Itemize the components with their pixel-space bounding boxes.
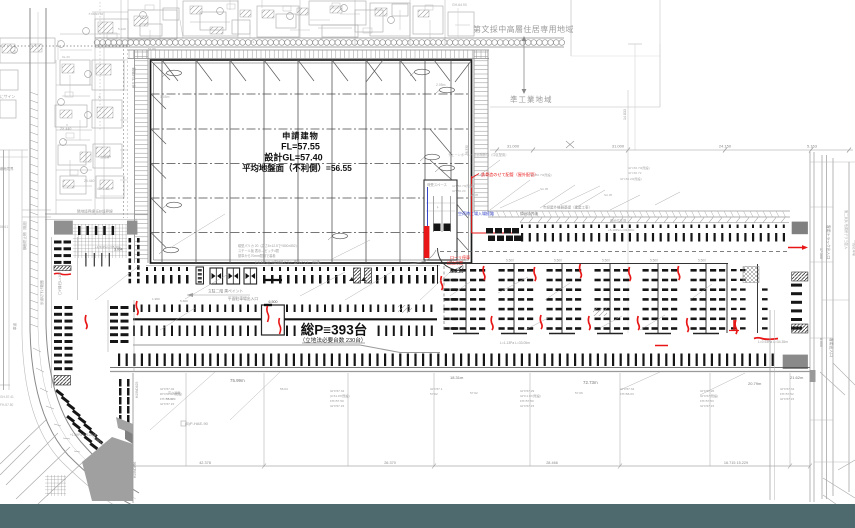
svg-text:GH-64.90: GH-64.90 [452, 3, 467, 7]
svg-text:〇Y縁石L=100: 〇Y縁石L=100 [57, 272, 62, 295]
svg-text:GH=57.15: GH=57.15 [520, 404, 534, 408]
svg-text:GH-56.72: GH-56.72 [628, 171, 642, 175]
svg-text:GH-56.70(既設): GH-56.70(既設) [628, 165, 650, 170]
svg-text:SA.05: SA.05 [540, 187, 549, 191]
svg-text:L=0.93Pa L=34.35m: L=0.93Pa L=34.35m [758, 340, 788, 344]
svg-text:較り下げ範囲: 較り下げ範囲 [131, 67, 136, 88]
svg-text:5.500: 5.500 [698, 259, 706, 263]
svg-text:当間開?: 当間開? [100, 154, 111, 159]
svg-text:31.000: 31.000 [612, 144, 625, 149]
svg-text:GH-56.70(既設): GH-56.70(既設) [530, 172, 552, 177]
svg-text:55.279: 55.279 [166, 397, 176, 401]
svg-text:18.31m: 18.31m [450, 375, 464, 380]
svg-text:17.500: 17.500 [819, 248, 823, 259]
svg-text:ト: ト [436, 205, 439, 209]
svg-text:L=1.13Pa L=33.05m: L=1.13Pa L=33.05m [500, 341, 530, 345]
svg-text:(+0.42Pa)(+0連結横ピラト 黒ペイント（共通）: (+0.42Pa)(+0連結横ピラト 黒ペイント（共通） [255, 260, 322, 265]
svg-text:+5.10Pa L=31.90m: +5.10Pa L=31.90m [608, 228, 635, 232]
svg-text:設計GL=57.40: 設計GL=57.40 [264, 152, 322, 163]
svg-text:6.500: 6.500 [269, 300, 278, 304]
svg-text:(0.51.07(既設): (0.51.07(既設) [330, 393, 350, 398]
svg-text:GH-56.70(既設): GH-56.70(既設) [452, 183, 474, 188]
svg-text:GH-56.20: GH-56.20 [452, 189, 466, 193]
svg-text:FH=57.52: FH=57.52 [780, 392, 794, 396]
svg-text:5.128: 5.128 [118, 27, 126, 31]
svg-text:(5)P-HAE-90: (5)P-HAE-90 [185, 421, 209, 426]
svg-text:FH=58.03: FH=58.03 [620, 392, 634, 396]
svg-text:磁型パリカ 20（高さ6×12.5でY800×852）: 磁型パリカ 20（高さ6×12.5でY800×852） [238, 243, 299, 248]
svg-text:FH-57.50: FH-57.50 [0, 403, 14, 407]
svg-text:1.05m: 1.05m [160, 95, 170, 99]
svg-text:5.500: 5.500 [554, 259, 562, 263]
svg-text:第文採中高層住居専用地域: 第文採中高層住居専用地域 [473, 24, 574, 34]
svg-text:H19ND825: H19ND825 [135, 382, 139, 398]
svg-text:2.05m: 2.05m [436, 83, 446, 87]
svg-text:スチール板 表示―ピッチ4間: スチール板 表示―ピッチ4間 [238, 248, 279, 253]
svg-text:基準から70mm間隔で装着: 基準から70mm間隔で装着 [238, 253, 276, 258]
svg-text:車道: 車道 [12, 323, 17, 331]
svg-text:56.61: 56.61 [0, 225, 8, 229]
svg-text:（立地法必要台数 230台）: （立地法必要台数 230台） [300, 336, 367, 344]
svg-text:横断防止柵（既設）: 横断防止柵（既設） [22, 219, 27, 251]
svg-text:26.370: 26.370 [384, 461, 396, 465]
svg-text:5.300: 5.300 [180, 299, 188, 303]
svg-text:FH=57.53: FH=57.53 [700, 399, 714, 403]
svg-text:57.06: 57.06 [575, 391, 583, 395]
svg-text:+1.09Pa L=31.90a: +1.09Pa L=31.90a [70, 433, 96, 437]
svg-text:大: 大 [98, 94, 101, 99]
svg-text:GH=57.34: GH=57.34 [330, 389, 344, 393]
svg-text:FH=57.50: FH=57.50 [330, 399, 344, 403]
svg-text:GH=57.26: GH=57.26 [700, 389, 714, 393]
svg-text:1.900: 1.900 [152, 297, 160, 301]
svg-text:市設屋外機器基礎（建屋工事）: 市設屋外機器基礎（建屋工事） [543, 205, 592, 210]
svg-text:57.02: 57.02 [430, 392, 438, 396]
svg-text:72.73m: 72.73m [583, 380, 598, 385]
svg-text:GH-57.41: GH-57.41 [0, 395, 14, 399]
svg-text:準工業地域: 準工業地域 [510, 94, 553, 104]
svg-text:2X.440: 2X.440 [60, 127, 71, 131]
svg-text:GH=57.29: GH=57.29 [520, 389, 534, 393]
svg-text:48+1.32: 48+1.32 [97, 187, 109, 191]
svg-text:客用出入口: 客用出入口 [829, 338, 834, 357]
svg-text:5.500: 5.500 [602, 259, 610, 263]
svg-text:+1.53Pa L=35.90a: +1.53Pa L=35.90a [95, 245, 121, 249]
svg-text:平均地盤面（不利側）=56.55: 平均地盤面（不利側）=56.55 [242, 163, 352, 173]
svg-text:第二京浜 柏書房デクヨ並入: 第二京浜 柏書房デクヨ並入 [844, 210, 849, 250]
svg-text:GH=57.34: GH=57.34 [780, 387, 794, 391]
svg-text:21.62m: 21.62m [790, 375, 804, 380]
svg-text:申請建物: 申請建物 [282, 131, 319, 141]
svg-text:隣地境界線 田B境界線: 隣地境界線 田B境界線 [77, 209, 113, 214]
svg-text:9L.33: 9L.33 [62, 55, 70, 59]
svg-text:敷地境界: 敷地境界 [0, 166, 14, 171]
svg-text:20.79m: 20.79m [748, 381, 762, 386]
svg-text:客用トラック出入口: 客用トラック出入口 [826, 225, 831, 259]
svg-text:FH=57.50: FH=57.50 [520, 399, 534, 403]
svg-text:GH=57.1: GH=57.1 [430, 387, 443, 391]
svg-text:GH-56.20(既設): GH-56.20(既設) [620, 176, 642, 181]
svg-text:24.150: 24.150 [719, 144, 732, 149]
svg-text:SA.05: SA.05 [470, 193, 479, 197]
svg-text:GH=57.15: GH=57.15 [330, 404, 344, 408]
svg-text:14.833: 14.833 [623, 109, 627, 120]
svg-text:高さ基準: 高さ基準 [168, 390, 180, 395]
svg-text:5.500: 5.500 [506, 259, 514, 263]
svg-text:56.04: 56.04 [280, 387, 288, 391]
svg-text:57.62: 57.62 [470, 391, 478, 395]
svg-text:42.378: 42.378 [199, 461, 211, 465]
svg-text:51.89: 51.89 [148, 47, 156, 51]
svg-text:75.99m: 75.99m [230, 378, 245, 383]
svg-text:荷受スペース: 荷受スペース [427, 182, 448, 187]
svg-text:＊66.93.93: ＊66.93.93 [88, 12, 103, 16]
svg-text:GH=57.15: GH=57.15 [700, 404, 714, 408]
svg-text:立駐二階 黒ペイント: 立駐二階 黒ペイント [208, 289, 243, 294]
svg-text:総P≡393台: 総P≡393台 [301, 322, 367, 338]
svg-text:にサイン: にサイン [0, 94, 15, 99]
svg-text:現地住民隊: 現地住民隊 [610, 218, 627, 223]
svg-text:31.000: 31.000 [507, 144, 520, 149]
svg-text:5.163: 5.163 [807, 144, 818, 149]
svg-text:FL=57.55: FL=57.55 [281, 142, 320, 152]
svg-text:H19ND805: H19ND805 [133, 462, 137, 478]
svg-text:16.715 15.229: 16.715 15.229 [724, 461, 748, 465]
svg-text:チェーンポール・全面横断防（中区配置）: チェーンポール・全面横断防（中区配置） [448, 152, 508, 157]
svg-text:GH=57.15: GH=57.15 [160, 402, 174, 406]
svg-text:SA.05: SA.05 [604, 193, 613, 197]
svg-text:5.500: 5.500 [458, 259, 466, 263]
svg-text:歩道切下げ範囲: 歩道切下げ範囲 [39, 280, 44, 305]
svg-text:平面駐車場出入口: 平面駐車場出入口 [228, 296, 259, 301]
svg-text:8.000: 8.000 [819, 338, 823, 347]
svg-text:28.466: 28.466 [546, 461, 558, 465]
svg-text:GH=1.07(既設): GH=1.07(既設) [520, 393, 541, 398]
svg-text:GH=57.15: GH=57.15 [780, 397, 794, 401]
svg-text:5.500: 5.500 [650, 259, 658, 263]
svg-text:26.440: 26.440 [84, 179, 94, 183]
svg-text:空荷時工場入場経路: 空荷時工場入場経路 [458, 210, 494, 216]
svg-text:隣地境界線: 隣地境界線 [520, 211, 538, 216]
